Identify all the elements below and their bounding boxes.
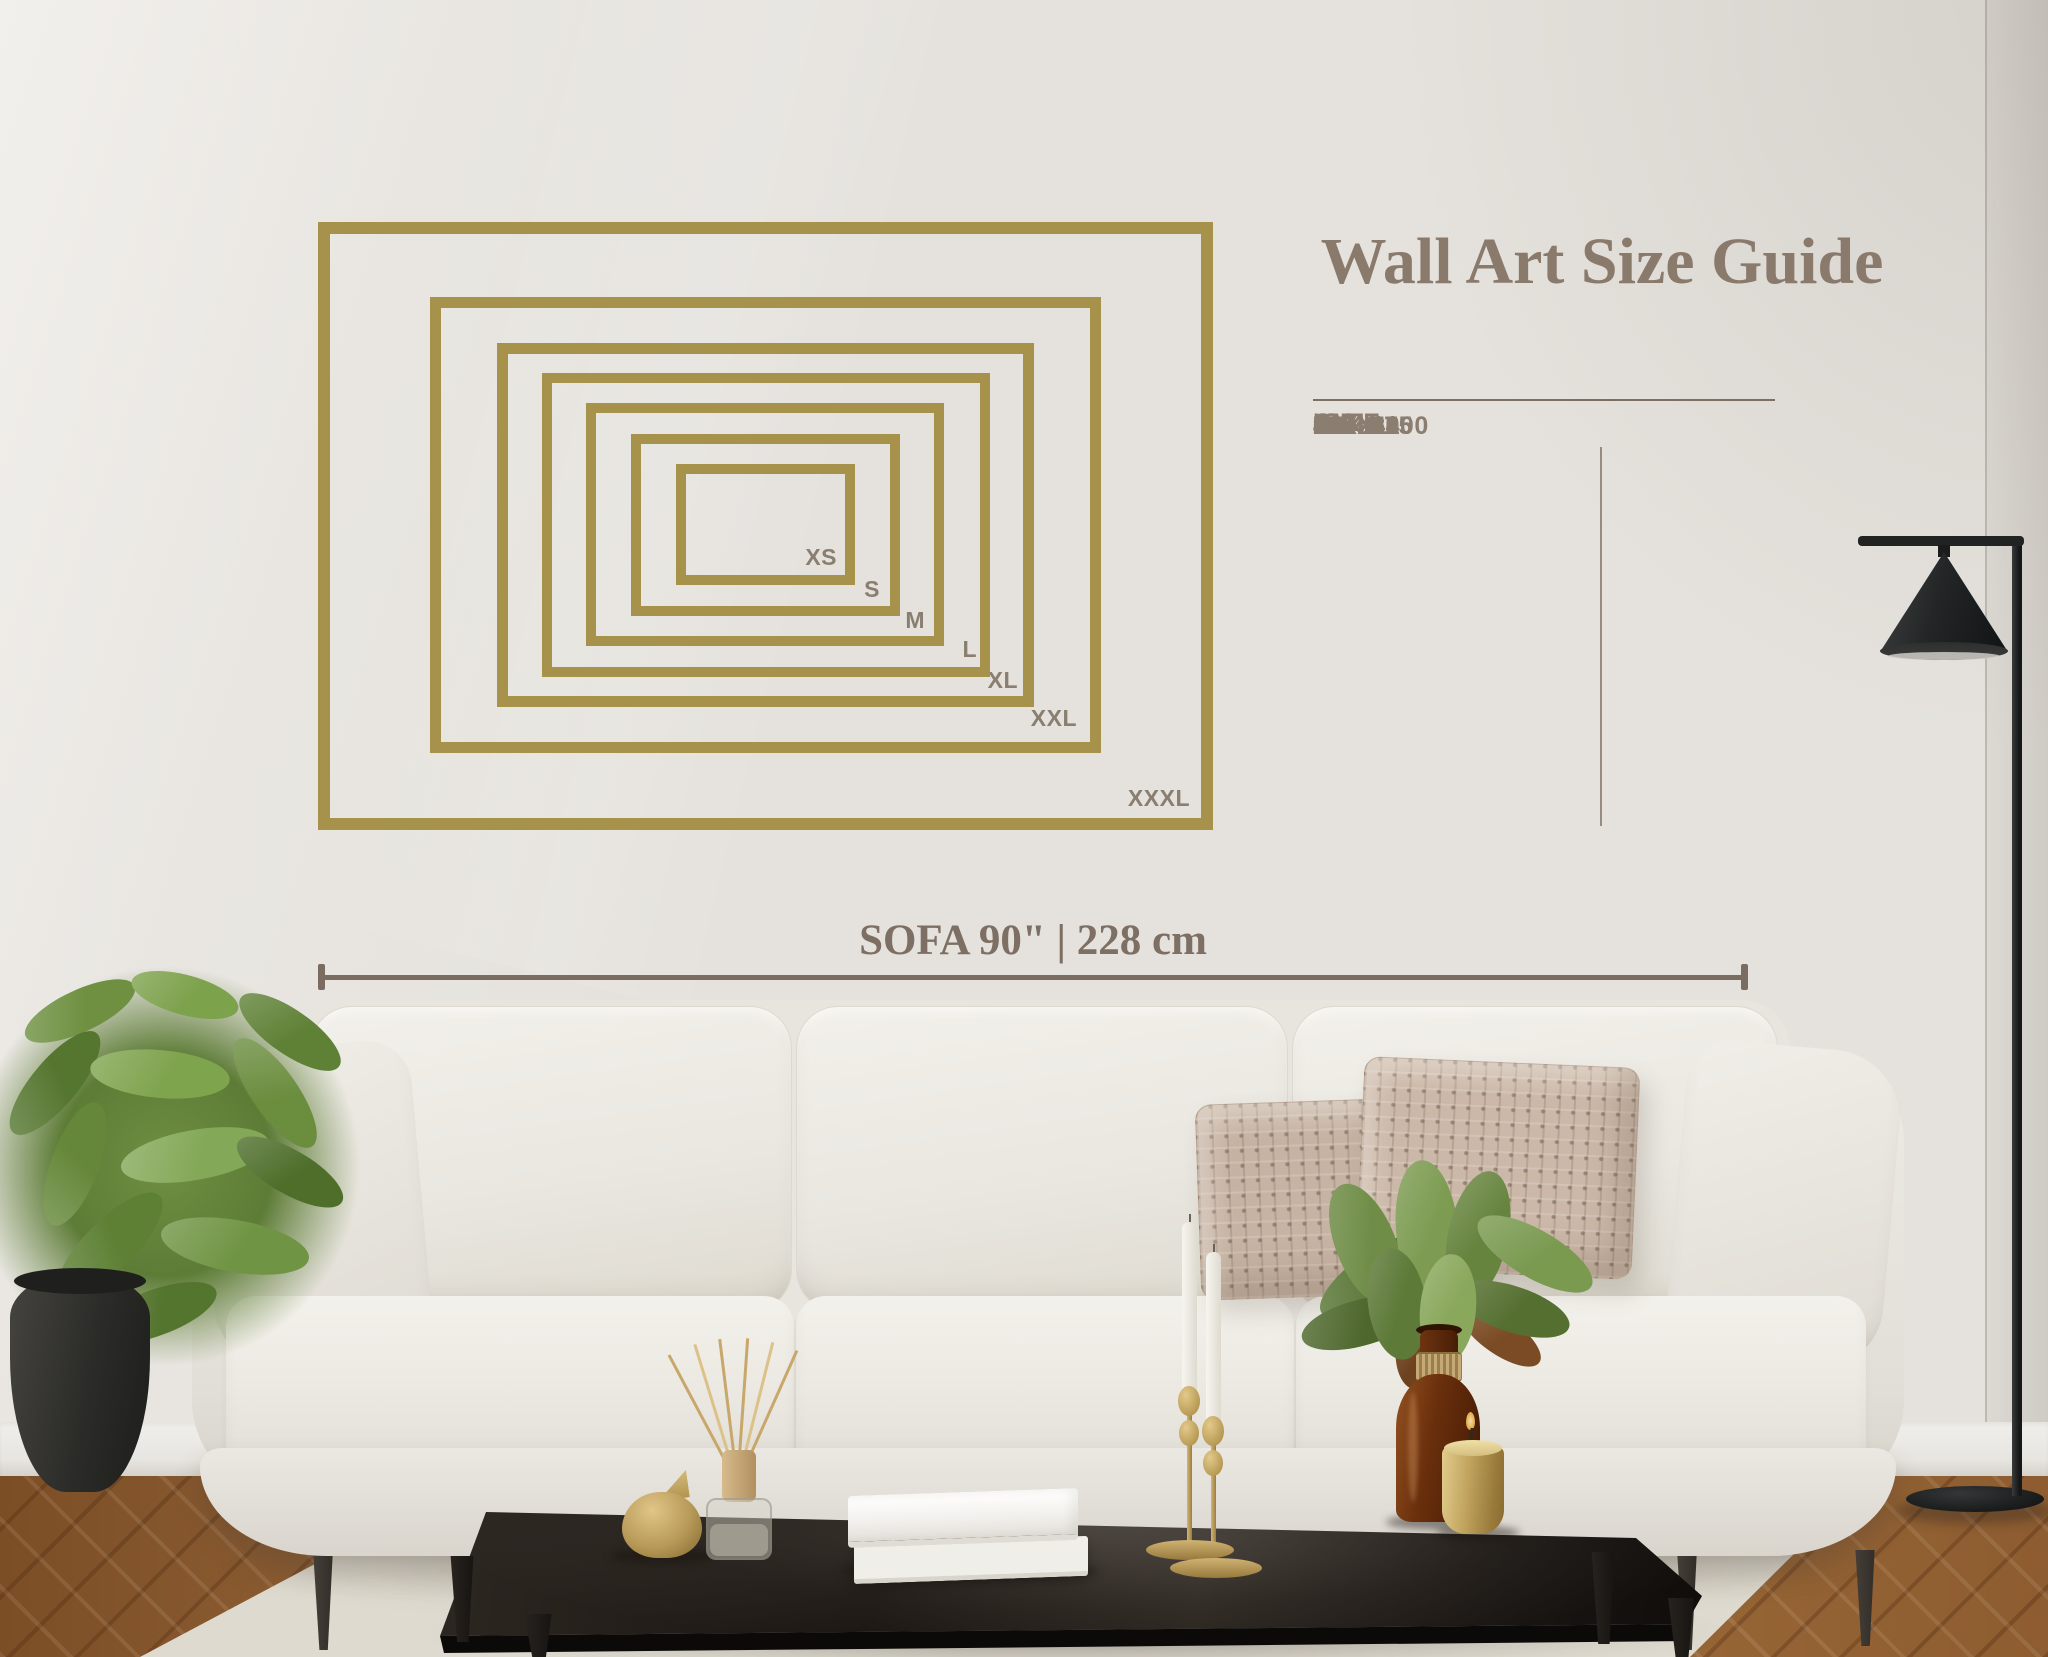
candlestick-bead	[1179, 1420, 1199, 1446]
diffuser-liquid	[710, 1524, 768, 1556]
size-label-xs: XS	[805, 544, 837, 571]
gold-candle	[1442, 1446, 1504, 1534]
size-table: SIZE INCH CM XS 12 x 8 30 x 20 S 18 x 12…	[1313, 399, 1775, 827]
lamp-base	[1906, 1486, 2044, 1512]
candlestick-bead	[1202, 1416, 1224, 1446]
lamp-shade-inner-light	[1888, 652, 2000, 660]
plant-pot	[10, 1274, 150, 1492]
gold-candle-top	[1444, 1440, 1502, 1456]
row-cm: 150 x 100	[1313, 412, 1429, 441]
candlestick-bead	[1203, 1450, 1223, 1476]
taper-candle	[1182, 1222, 1197, 1400]
size-label-m: M	[905, 607, 925, 634]
candlestick-base	[1146, 1540, 1234, 1560]
size-label-xl: XL	[988, 667, 1018, 694]
frame-rect-xs: XS	[676, 464, 855, 585]
size-label-xxl: XXL	[1031, 705, 1077, 732]
table-row: XXXL 60 x 40 150 x 100	[1313, 399, 1775, 453]
plant-pot-rim	[14, 1268, 146, 1294]
size-label-l: L	[962, 636, 977, 663]
candlestick-base	[1170, 1558, 1262, 1578]
sofa-measure-label: SOFA 90" | 228 cm	[733, 916, 1333, 965]
page-title: Wall Art Size Guide	[1272, 224, 1932, 304]
size-label-xxxl: XXXL	[1128, 785, 1190, 812]
amber-vase-highlight	[1408, 1392, 1418, 1502]
book	[848, 1488, 1078, 1548]
table-column-divider	[1600, 447, 1602, 826]
taper-candle	[1206, 1252, 1221, 1428]
measure-tick-left	[318, 964, 325, 990]
candlestick-bead	[1178, 1386, 1200, 1416]
living-room-scene: XXXL XXL XL L M S XS Wall Art Size Guide…	[0, 0, 2048, 1657]
size-label-s: S	[864, 576, 880, 603]
sofa-measure-line	[318, 975, 1748, 980]
lamp-pole	[2012, 540, 2022, 1496]
measure-tick-right	[1741, 964, 1748, 990]
diffuser-cap	[722, 1450, 756, 1502]
brass-bowl	[622, 1492, 702, 1558]
